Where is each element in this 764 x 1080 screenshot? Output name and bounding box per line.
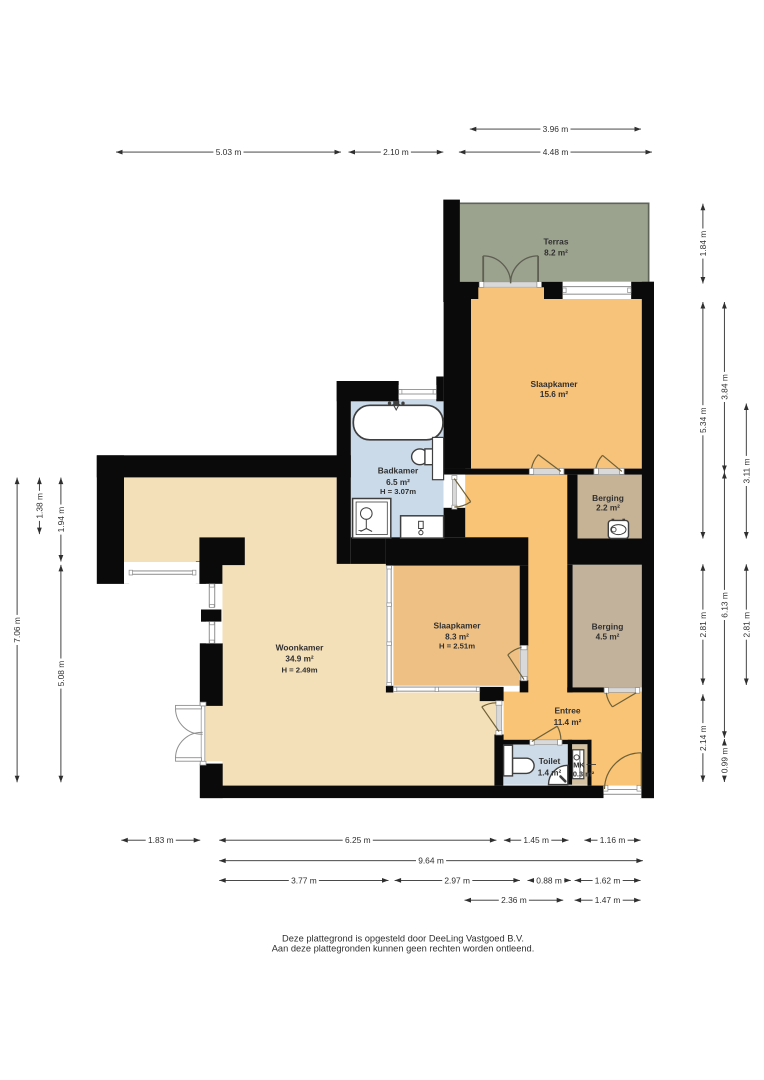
svg-text:34.9 m²: 34.9 m² — [285, 655, 313, 664]
svg-text:3.96 m: 3.96 m — [543, 124, 569, 134]
svg-text:1.47 m: 1.47 m — [595, 895, 621, 905]
svg-text:1.4 m²: 1.4 m² — [538, 768, 562, 777]
svg-text:15.6 m²: 15.6 m² — [540, 390, 568, 399]
svg-text:Slaapkamer: Slaapkamer — [433, 621, 481, 631]
svg-text:Deze plattegrond is opgesteld: Deze plattegrond is opgesteld door DeeLi… — [282, 934, 524, 944]
svg-text:MK: MK — [573, 761, 585, 770]
svg-text:2.14 m: 2.14 m — [698, 725, 708, 751]
svg-text:Berging: Berging — [592, 493, 624, 503]
svg-text:0.88 m: 0.88 m — [536, 875, 562, 885]
svg-text:0.3 m²: 0.3 m² — [573, 770, 595, 779]
svg-text:7.06 m: 7.06 m — [12, 617, 22, 643]
svg-text:9.64 m: 9.64 m — [418, 856, 444, 866]
svg-text:1.38 m: 1.38 m — [34, 493, 44, 519]
svg-text:Aan deze plattegronden kunnen: Aan deze plattegronden kunnen geen recht… — [272, 944, 535, 954]
svg-text:8.3 m²: 8.3 m² — [445, 633, 469, 642]
svg-text:1.83 m: 1.83 m — [148, 835, 174, 845]
svg-text:Slaapkamer: Slaapkamer — [530, 379, 578, 389]
svg-text:6.13 m: 6.13 m — [719, 592, 729, 618]
svg-text:2.81 m: 2.81 m — [698, 612, 708, 638]
svg-text:H = 3.07m: H = 3.07m — [380, 487, 416, 496]
svg-text:Woonkamer: Woonkamer — [276, 643, 325, 653]
svg-text:4.5 m²: 4.5 m² — [596, 633, 620, 642]
svg-text:Terras: Terras — [544, 237, 569, 247]
svg-text:Entree: Entree — [554, 706, 580, 716]
svg-text:5.08 m: 5.08 m — [56, 661, 66, 687]
svg-text:H = 2.49m: H = 2.49m — [281, 666, 317, 675]
svg-text:2.10 m: 2.10 m — [383, 147, 409, 157]
svg-text:6.25 m: 6.25 m — [345, 835, 371, 845]
svg-text:3.11 m: 3.11 m — [741, 458, 751, 483]
svg-text:2.81 m: 2.81 m — [741, 612, 751, 638]
svg-text:5.34 m: 5.34 m — [698, 407, 708, 433]
svg-text:6.5 m²: 6.5 m² — [386, 478, 410, 487]
svg-text:11.4 m²: 11.4 m² — [554, 718, 582, 727]
svg-text:5.03 m: 5.03 m — [216, 147, 242, 157]
svg-text:2.97 m: 2.97 m — [444, 875, 470, 885]
svg-text:Badkamer: Badkamer — [378, 466, 419, 476]
svg-text:3.77 m: 3.77 m — [291, 875, 317, 885]
svg-text:8.2 m²: 8.2 m² — [544, 249, 568, 258]
svg-text:2.2 m²: 2.2 m² — [596, 503, 620, 512]
svg-text:4.48 m: 4.48 m — [543, 147, 569, 157]
svg-text:1.45 m: 1.45 m — [523, 835, 549, 845]
svg-text:1.62 m: 1.62 m — [595, 875, 621, 885]
svg-text:1.84 m: 1.84 m — [698, 231, 708, 257]
svg-text:Berging: Berging — [592, 622, 624, 632]
svg-text:3.84 m: 3.84 m — [719, 374, 729, 400]
svg-text:H = 2.51m: H = 2.51m — [439, 642, 475, 651]
svg-text:1.16 m: 1.16 m — [600, 835, 626, 845]
svg-text:0.99 m: 0.99 m — [719, 748, 729, 774]
svg-text:1.94 m: 1.94 m — [56, 507, 66, 533]
svg-text:Toilet: Toilet — [539, 756, 561, 766]
svg-text:2.36 m: 2.36 m — [501, 895, 527, 905]
